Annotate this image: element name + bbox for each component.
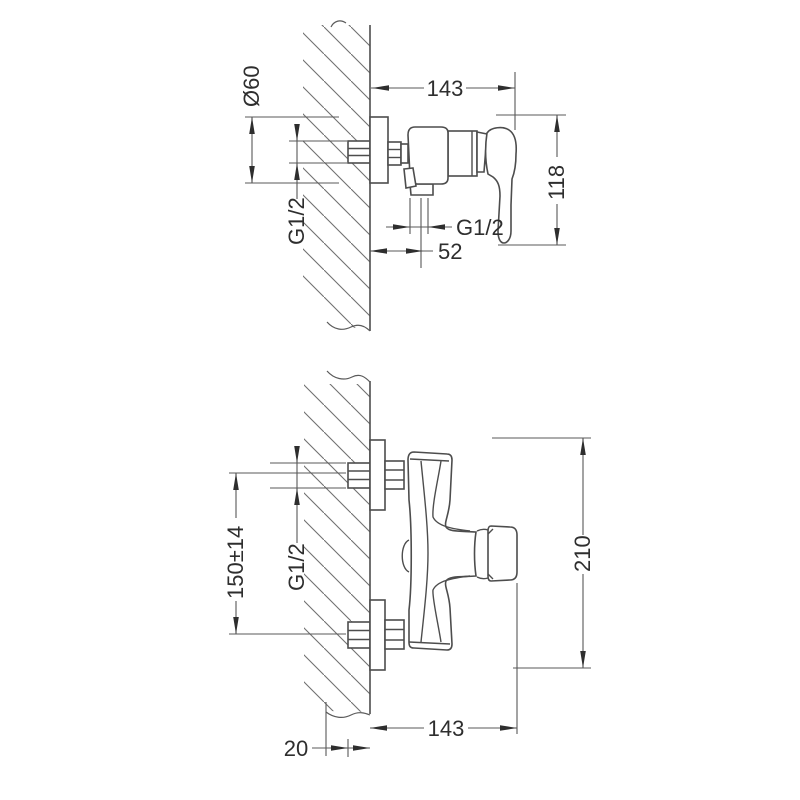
dim-label-inlet-thread: G1/2 <box>284 197 309 245</box>
drawing-canvas: Ø60 G1/2 143 118 <box>0 0 800 800</box>
arrowhead <box>393 224 410 230</box>
wall-break-bottom <box>326 712 370 717</box>
spacer-ring <box>401 144 408 163</box>
wall-break-top <box>327 371 370 382</box>
handle-end-cap <box>488 526 517 581</box>
inlet-hex-nut-bottom <box>348 622 370 648</box>
wall-section-bottom-view <box>304 371 370 756</box>
dimension-wall-thickness: 20 <box>284 736 370 761</box>
mixer-front-view <box>348 440 517 670</box>
dim-label-overall-height: 210 <box>570 535 595 572</box>
arrowhead <box>370 725 387 731</box>
valve-body-front <box>408 452 476 650</box>
dim-label-depth: 143 <box>427 76 464 101</box>
dim-label-flange-diameter: Ø60 <box>239 65 264 107</box>
wall-hatching <box>303 25 370 331</box>
handle-neck-bottom <box>477 577 488 579</box>
diverter-lip <box>404 168 416 188</box>
arrowhead <box>500 725 517 731</box>
arrowhead <box>249 166 255 183</box>
dimension-depth-top-view: 143 <box>371 72 515 130</box>
arrowhead <box>580 438 586 455</box>
arrowhead <box>233 617 239 634</box>
arrowhead <box>370 248 387 254</box>
dim-label-inlet-spacing: 150±14 <box>223 526 248 599</box>
arrowhead <box>428 224 445 230</box>
top-view: Ø60 G1/2 143 118 <box>239 21 569 331</box>
wall-section-top-view <box>303 21 370 331</box>
arrowhead <box>331 745 348 751</box>
arrowhead <box>294 163 300 180</box>
arrowhead <box>353 745 370 751</box>
arrowhead <box>294 488 300 505</box>
arrowhead <box>294 124 300 141</box>
connector-hex-nut-bottom <box>385 620 404 649</box>
inlet-hex-nut <box>348 141 370 163</box>
flange-plate-bottom <box>370 600 385 670</box>
wall-hatching <box>304 384 370 712</box>
flange-plate <box>370 117 388 183</box>
dimension-outlet-offset: 52 <box>370 239 462 264</box>
connector-hex-nut <box>388 142 401 165</box>
arrowhead <box>249 117 255 134</box>
arrowhead <box>233 473 239 490</box>
dim-label-outlet-offset: 52 <box>438 239 462 264</box>
connector-hex-nut-top <box>385 461 404 489</box>
body-side-bump <box>402 540 409 572</box>
technical-drawing: Ø60 G1/2 143 118 <box>0 0 800 800</box>
inlet-hex-nut-top <box>348 463 370 488</box>
arrowhead <box>554 115 560 132</box>
dim-label-depth-bottom: 143 <box>428 716 465 741</box>
arrowhead <box>498 85 515 91</box>
arrowhead <box>580 651 586 668</box>
handle-neck-top <box>477 529 488 531</box>
flange-plate-top <box>370 440 385 510</box>
bottom-view: 150±14 G1/2 210 143 <box>223 371 595 761</box>
arrowhead <box>294 446 300 463</box>
dim-label-inlet-thread-bottom: G1/2 <box>284 543 309 591</box>
dim-label-wall-thickness: 20 <box>284 736 308 761</box>
arrowhead <box>554 228 560 245</box>
dim-label-height: 118 <box>544 165 569 200</box>
dim-label-outlet-thread: G1/2 <box>456 215 504 240</box>
arrowhead <box>372 85 389 91</box>
